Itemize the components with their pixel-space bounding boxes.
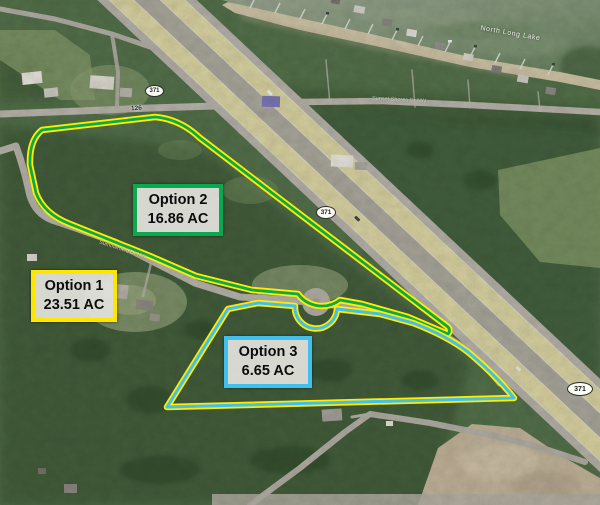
shore-road-label: Sunset Shores Dr NW (372, 96, 426, 105)
route-371-shield: 371 (316, 206, 336, 219)
option-acreage: 23.51 AC (39, 296, 109, 315)
option-acreage: 6.65 AC (232, 362, 304, 381)
option-name: Option 3 (232, 343, 304, 362)
lake-name-label: North Long Lake (480, 25, 541, 42)
option-2-label: Option 2 16.86 AC (133, 184, 223, 236)
road-126-label: 126 (131, 105, 142, 113)
option-acreage: 16.86 AC (141, 210, 215, 229)
option-name: Option 2 (141, 191, 215, 210)
option-1-label: Option 1 23.51 AC (31, 270, 117, 322)
option-name: Option 1 (39, 277, 109, 296)
aerial-map: Option 1 23.51 AC Option 2 16.86 AC Opti… (0, 0, 600, 505)
route-371-shield: 371 (567, 382, 593, 396)
option-3-label: Option 3 6.65 AC (224, 336, 312, 388)
frontage-road-label: Summerfield Dr NW (98, 240, 146, 261)
route-371-shield: 371 (145, 85, 164, 97)
map-annotations: Option 1 23.51 AC Option 2 16.86 AC Opti… (0, 0, 600, 505)
